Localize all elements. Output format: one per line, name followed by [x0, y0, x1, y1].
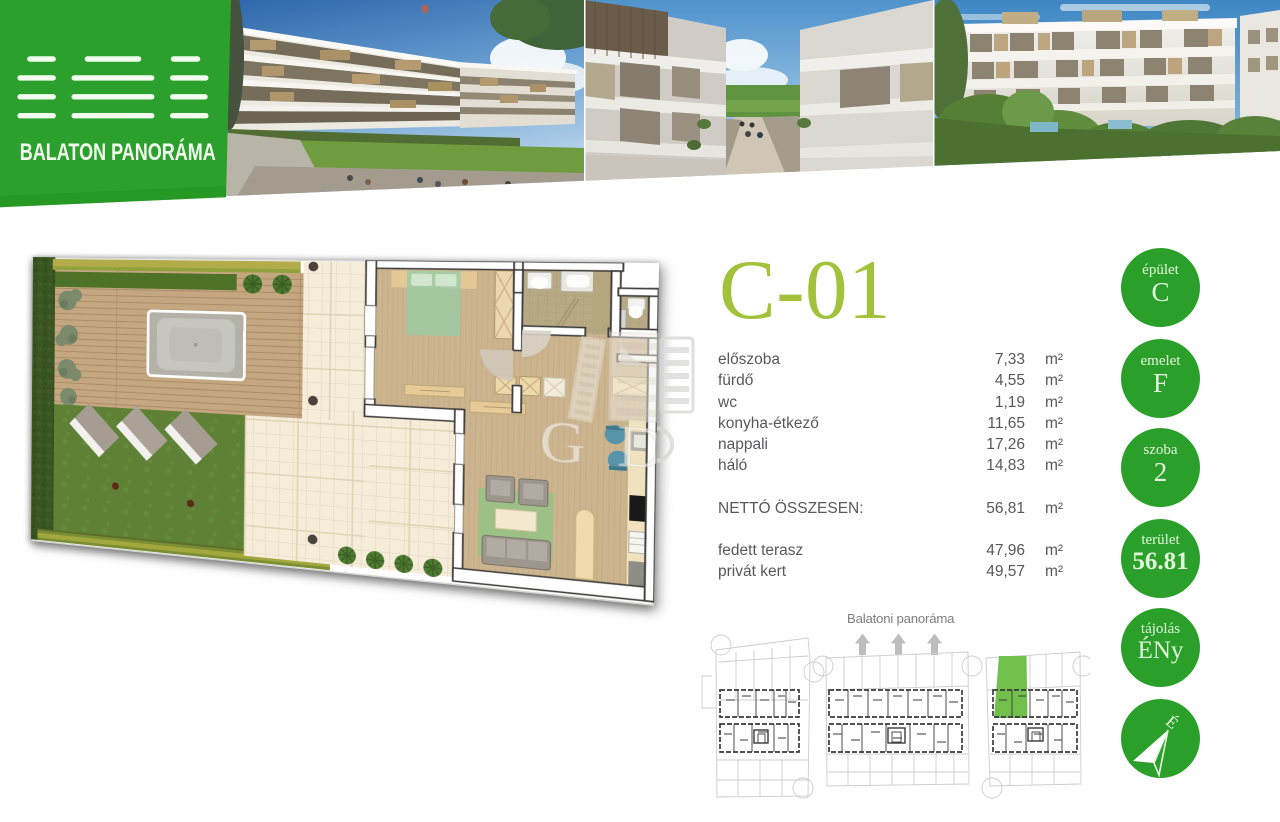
svg-text:BALATON PANORÁMA: BALATON PANORÁMA: [20, 137, 216, 165]
svg-text:G: G: [539, 409, 586, 477]
svg-text:D: D: [617, 413, 659, 482]
svg-text:É: É: [1162, 712, 1182, 733]
svg-text:Balatoni panoráma: Balatoni panoráma: [847, 611, 955, 626]
